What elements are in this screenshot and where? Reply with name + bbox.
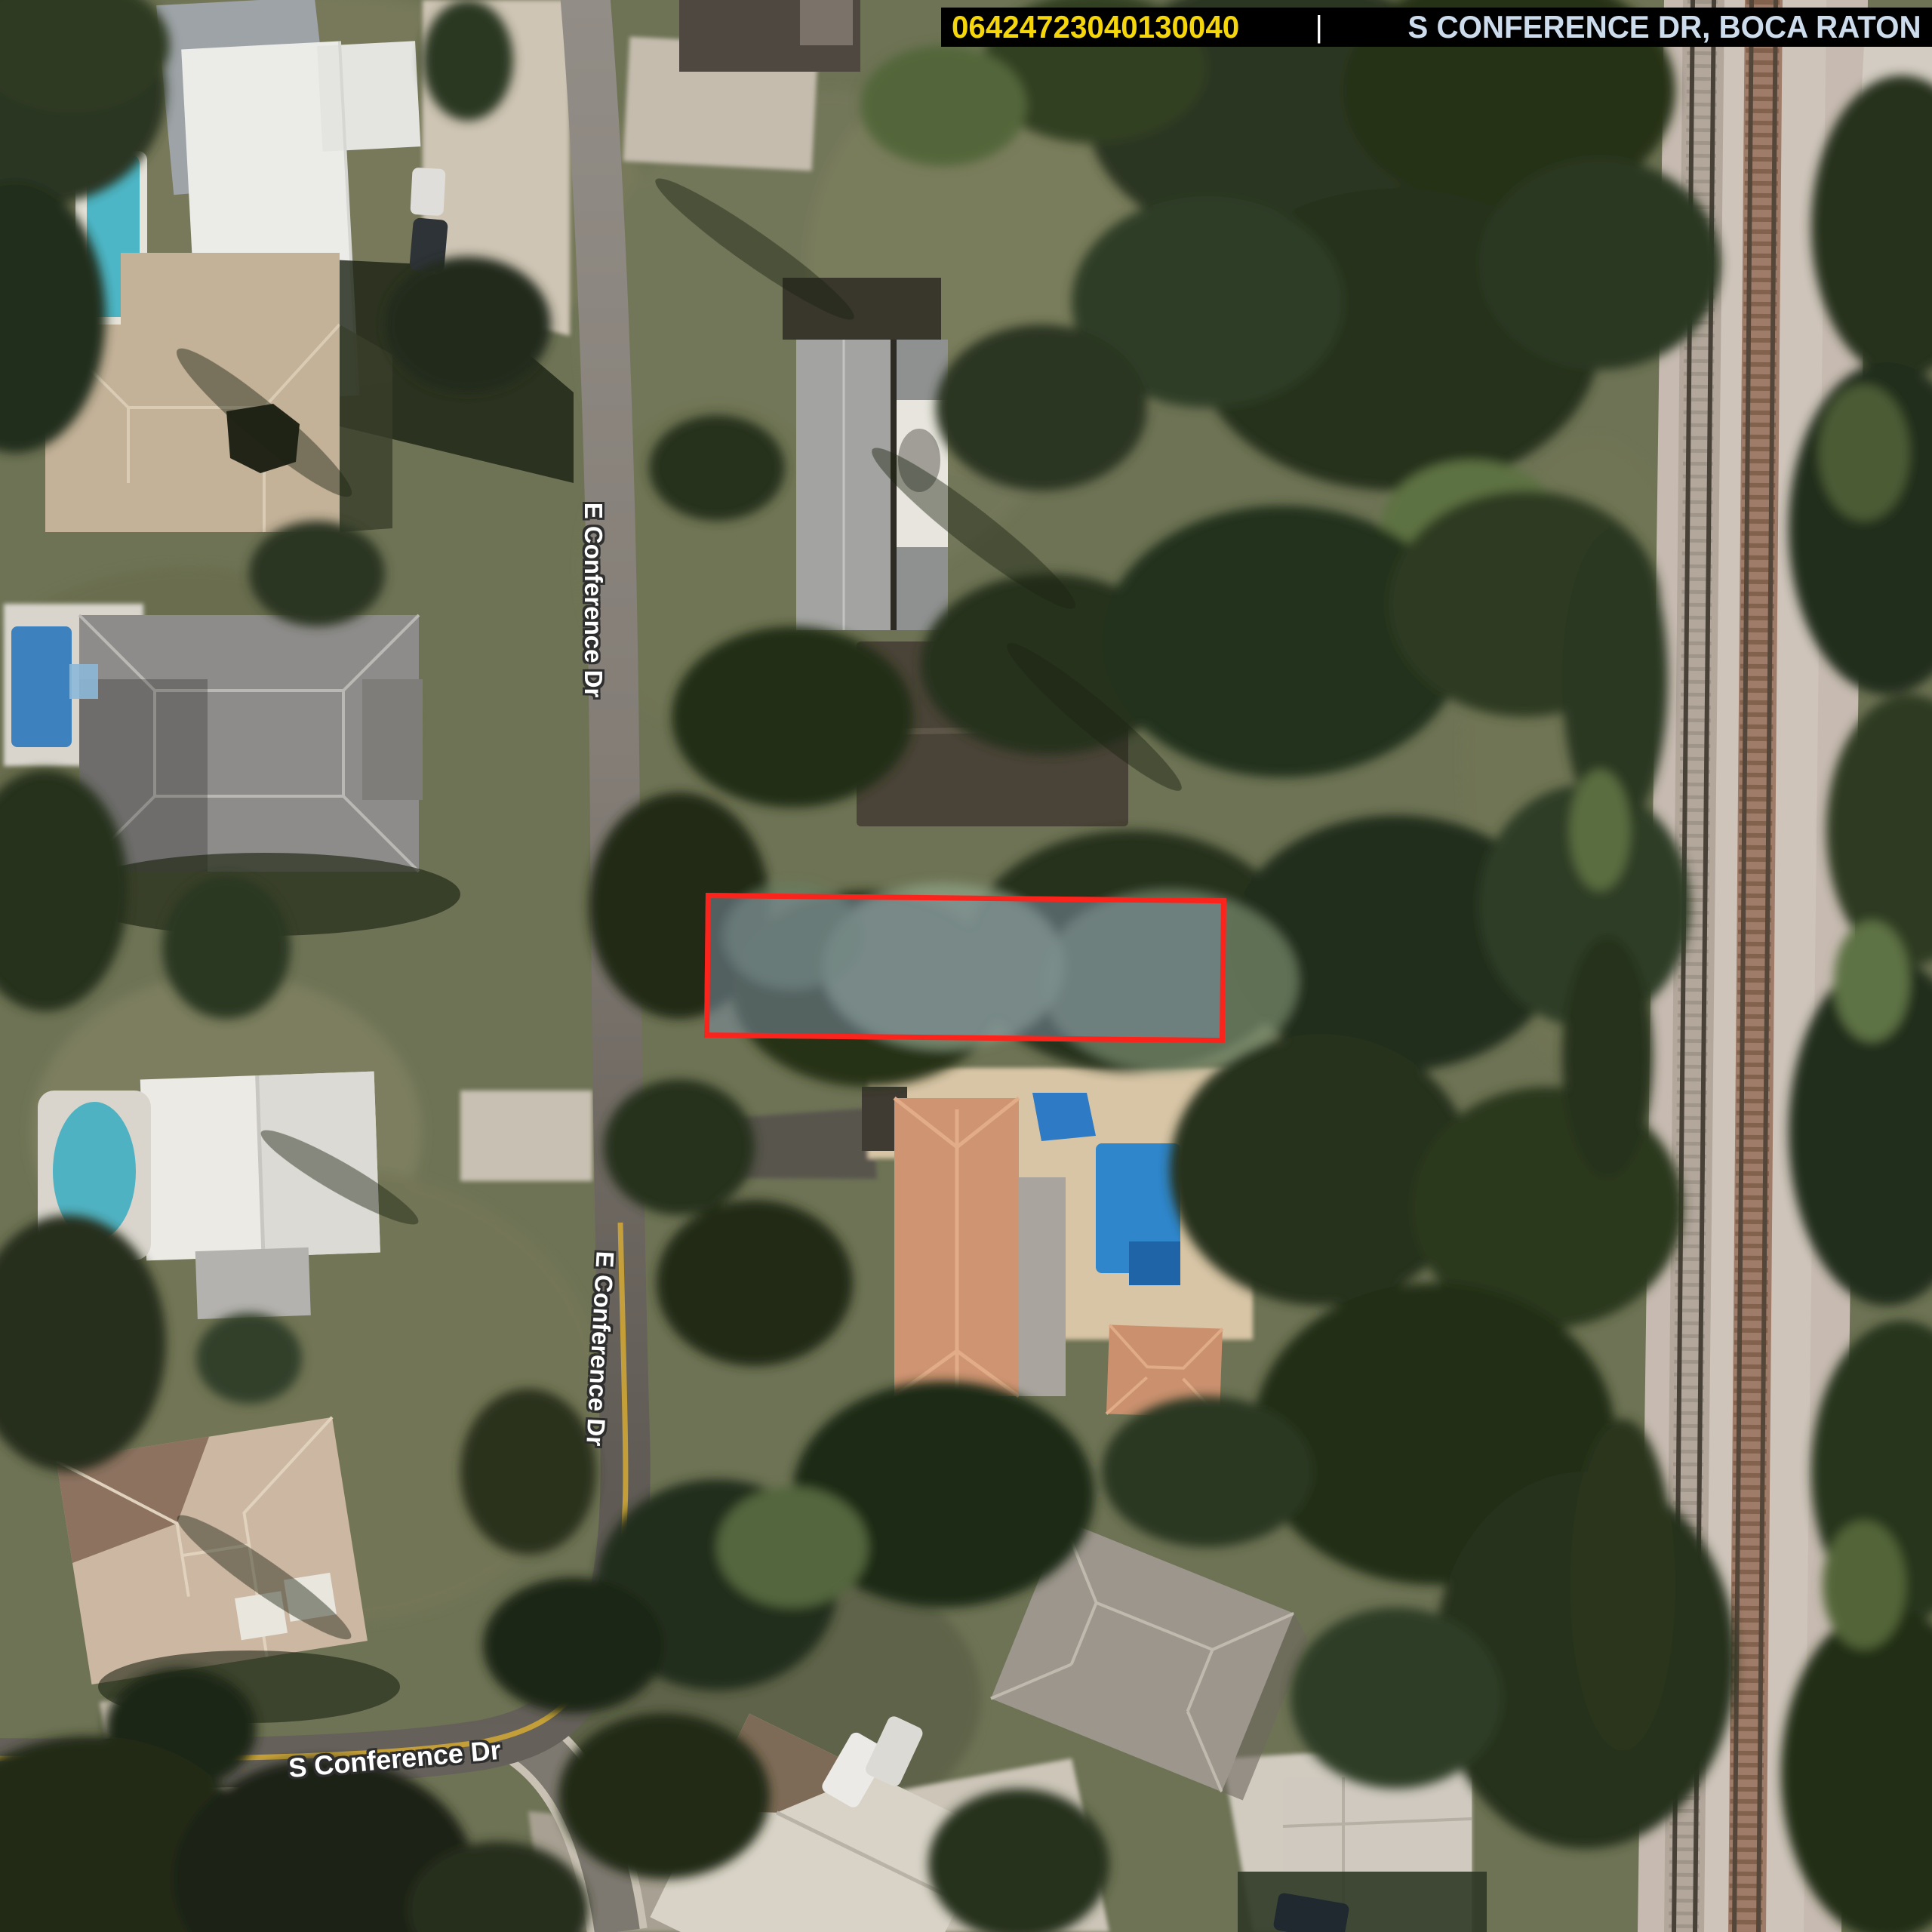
pool-tarp <box>1032 1093 1096 1141</box>
parcel-highlight[interactable] <box>704 893 1226 1043</box>
house-left-gray <box>79 615 423 872</box>
house-top-right-dark <box>679 0 860 72</box>
header-separator: | <box>1315 11 1323 45</box>
street-label-e-conference-dr-north: E Conference Dr <box>579 503 608 698</box>
car-white <box>410 168 445 216</box>
house-top-middle-gray <box>783 278 948 630</box>
parcel-address: S CONFERENCE DR, BOCA RATON <box>1408 9 1921 45</box>
parcel-header-bar: 06424723040130040 | S CONFERENCE DR, BOC… <box>941 8 1932 47</box>
parcel-id: 06424723040130040 <box>952 9 1239 45</box>
pool-left-blue <box>11 626 72 747</box>
map-viewport[interactable]: E Conference Dr E Conference Dr S Confer… <box>0 0 1932 1932</box>
